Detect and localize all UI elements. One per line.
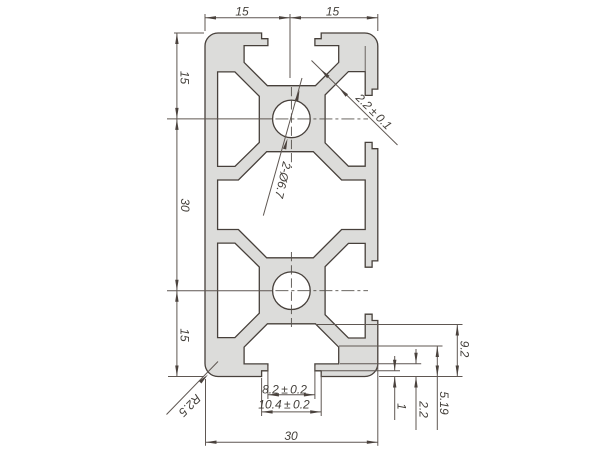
svg-text:15: 15	[326, 5, 340, 19]
svg-text:10.4 ± 0.2: 10.4 ± 0.2	[258, 398, 310, 412]
svg-text:8.2 ± 0.2: 8.2 ± 0.2	[262, 382, 307, 396]
svg-text:R2.5: R2.5	[176, 391, 204, 419]
svg-text:9.2: 9.2	[458, 341, 472, 358]
svg-text:15: 15	[177, 328, 191, 342]
svg-text:30: 30	[284, 429, 298, 443]
svg-text:15: 15	[177, 71, 191, 85]
svg-text:2.2 ± 0.1: 2.2 ± 0.1	[352, 90, 394, 132]
svg-text:2.2: 2.2	[417, 400, 431, 418]
svg-text:2-Ø6.7: 2-Ø6.7	[272, 159, 294, 200]
svg-text:30: 30	[178, 198, 192, 212]
svg-text:1: 1	[395, 403, 409, 410]
svg-text:5.19: 5.19	[437, 391, 451, 415]
svg-text:15: 15	[235, 5, 249, 19]
